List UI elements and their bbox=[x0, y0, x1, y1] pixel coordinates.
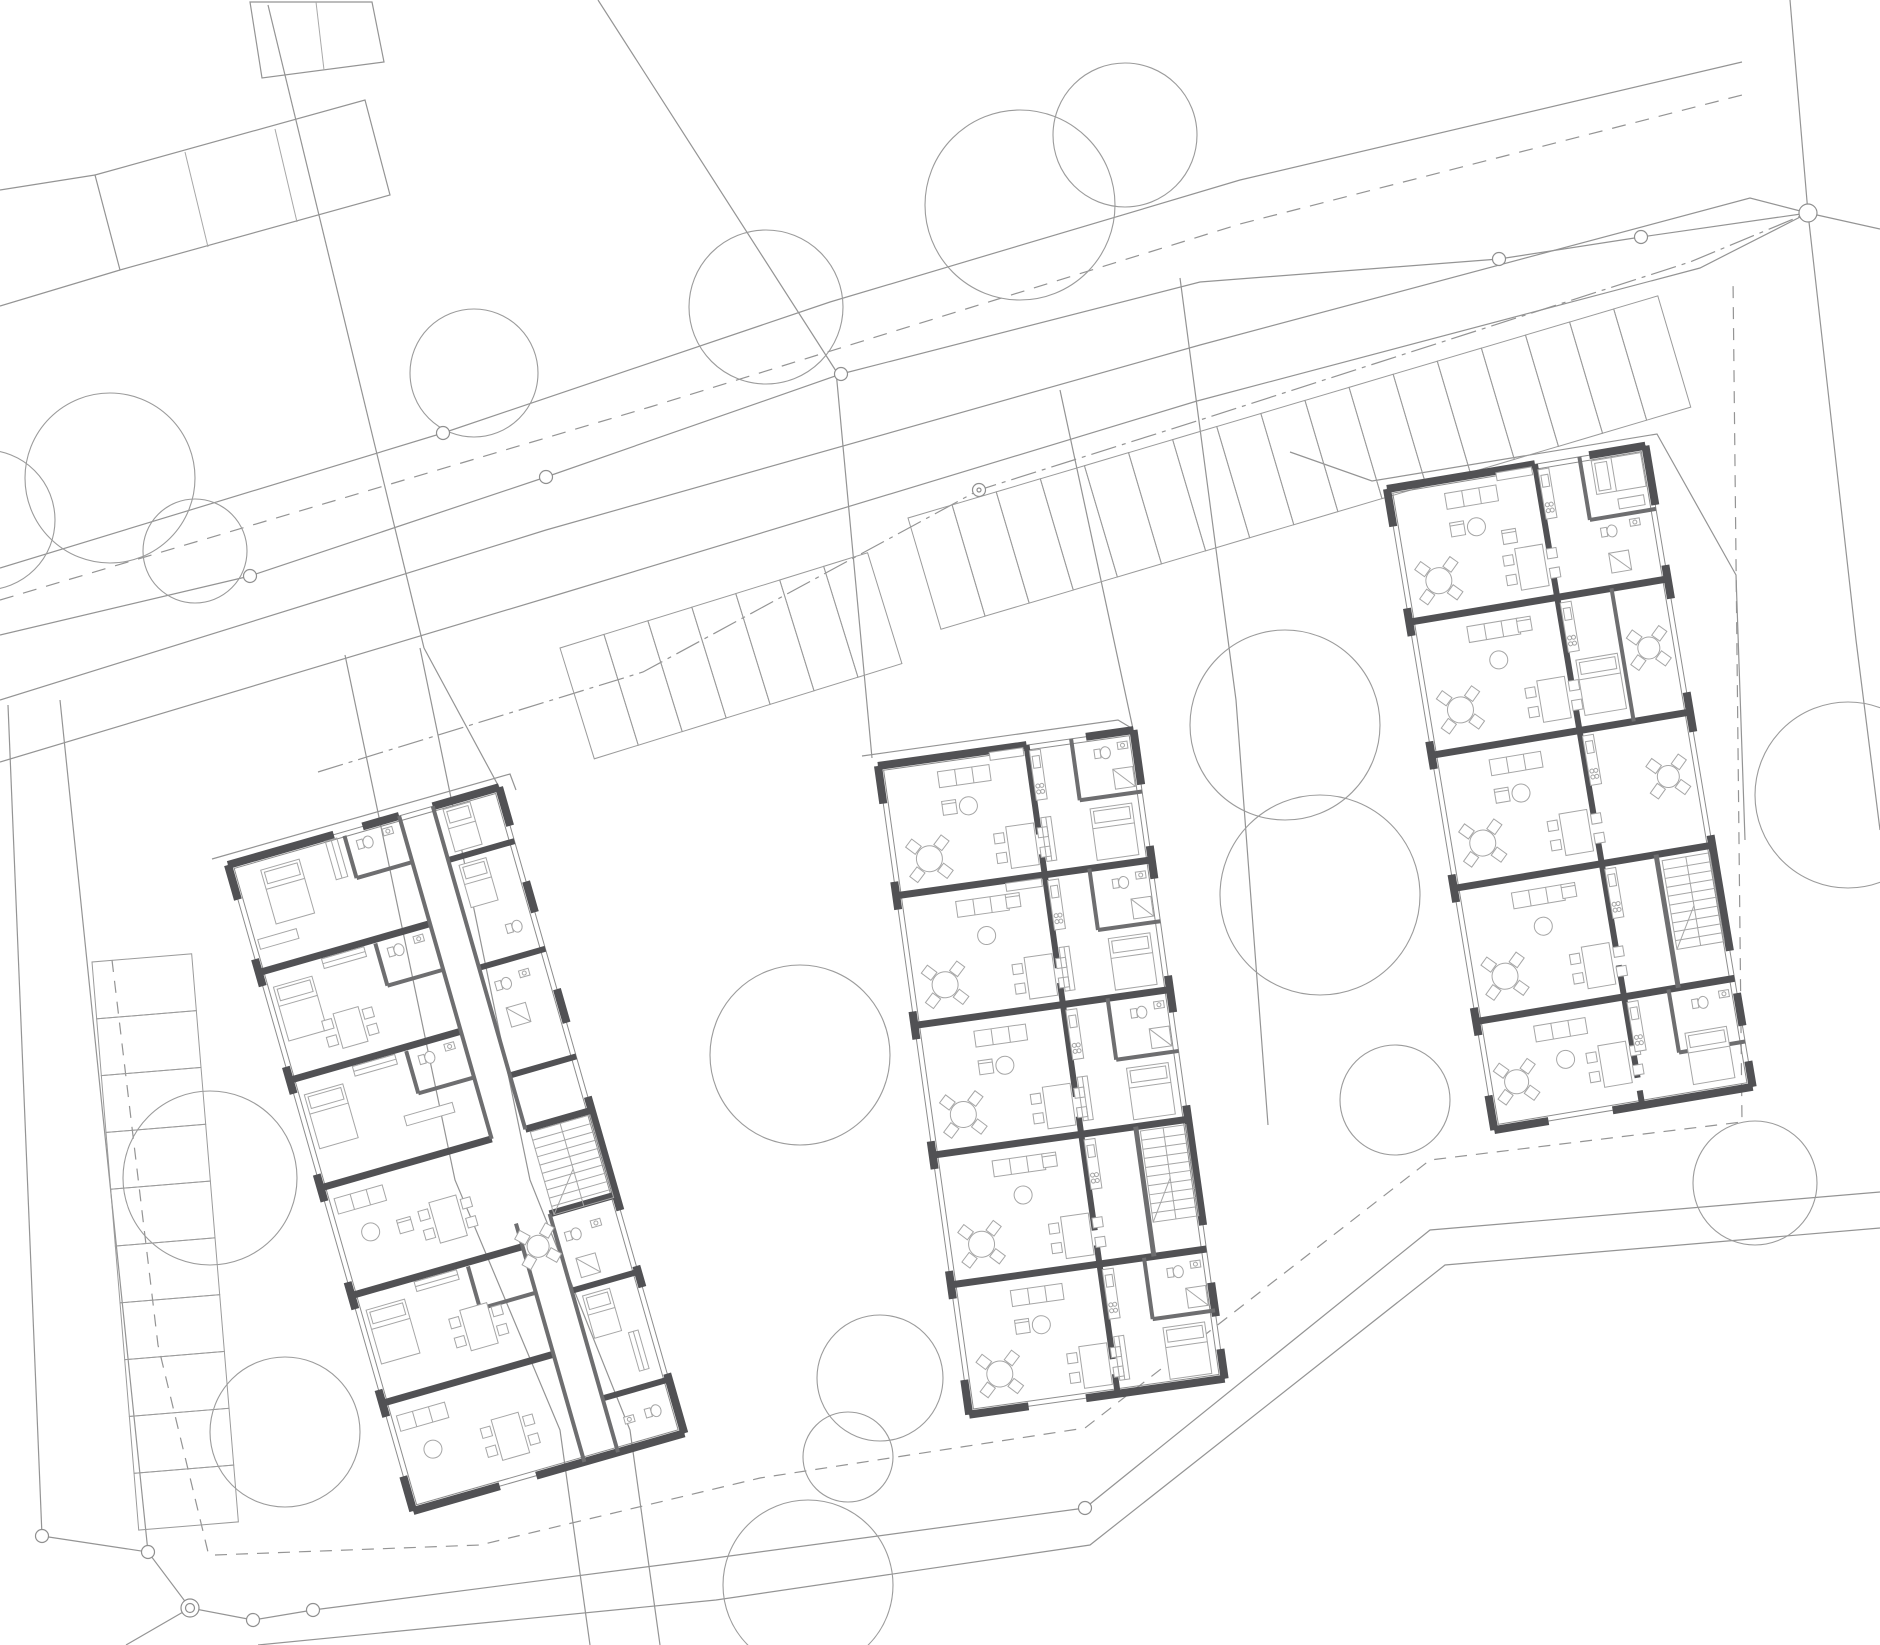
furniture-dining-table bbox=[1061, 1213, 1095, 1258]
furniture-sofa bbox=[992, 1154, 1046, 1177]
tree-circle bbox=[1693, 1121, 1817, 1245]
chair bbox=[1033, 1113, 1044, 1124]
furniture-sink bbox=[444, 1042, 456, 1051]
partition-wall bbox=[1153, 1310, 1215, 1319]
furniture-sink bbox=[1718, 990, 1729, 999]
wall-segment bbox=[351, 1247, 522, 1296]
parking-stall bbox=[1040, 466, 1117, 590]
chair bbox=[1571, 699, 1583, 711]
west-boundary-dashed bbox=[112, 960, 208, 1552]
tree-circle bbox=[410, 309, 538, 437]
site-plan-svg bbox=[0, 0, 1880, 1645]
survey-point bbox=[1635, 231, 1648, 244]
parking-stall bbox=[120, 1295, 224, 1360]
furniture-armchair bbox=[978, 1059, 994, 1075]
partition-wall bbox=[418, 1077, 474, 1093]
furniture-sofa bbox=[1489, 751, 1543, 775]
wall-segment bbox=[526, 881, 535, 912]
wall-segment bbox=[1748, 1061, 1752, 1087]
chair bbox=[466, 1216, 478, 1228]
furniture-dining-table bbox=[1537, 676, 1572, 722]
chair bbox=[1589, 1071, 1601, 1083]
furniture-bed bbox=[273, 976, 327, 1041]
furniture-coffee-table bbox=[1533, 916, 1554, 937]
partition-wall bbox=[387, 970, 443, 986]
wall-segment bbox=[403, 1476, 413, 1511]
stair-break bbox=[1147, 1178, 1176, 1222]
survey-manhole-dot bbox=[977, 488, 981, 492]
chair bbox=[1613, 946, 1625, 958]
chair bbox=[322, 1018, 334, 1030]
furniture-sofa bbox=[334, 1185, 386, 1214]
parking-stall bbox=[560, 634, 638, 758]
detail-line bbox=[316, 2, 324, 70]
wall-segment bbox=[510, 1056, 576, 1075]
furniture-bed bbox=[443, 802, 482, 852]
partition-wall bbox=[468, 1266, 480, 1308]
chair bbox=[454, 1335, 466, 1347]
parking-stall bbox=[111, 1181, 215, 1246]
furniture-dining-table bbox=[1042, 1083, 1076, 1128]
partition-wall bbox=[1080, 791, 1142, 800]
wall-segment bbox=[1645, 446, 1655, 505]
survey-point bbox=[437, 427, 450, 440]
chair bbox=[1525, 687, 1537, 699]
partition-wall bbox=[375, 943, 387, 985]
furniture-sofa bbox=[937, 765, 991, 788]
partition-wall bbox=[1116, 1051, 1178, 1060]
wall-segment bbox=[969, 1406, 1028, 1414]
furniture-dining-table bbox=[1024, 954, 1058, 999]
plot-line-c bbox=[1060, 390, 1133, 729]
furniture-coffee-table bbox=[422, 1438, 444, 1460]
furniture-dining-table bbox=[1581, 943, 1616, 989]
furniture-dining-table bbox=[1006, 823, 1040, 868]
furniture-armchair bbox=[1516, 616, 1532, 632]
survey-point bbox=[244, 570, 257, 583]
parking-row-west bbox=[92, 954, 238, 1530]
furniture-sink bbox=[413, 934, 425, 943]
furniture-coffee-table bbox=[1466, 516, 1487, 537]
parking-stall bbox=[692, 594, 770, 718]
wall-segment bbox=[667, 1374, 684, 1434]
tree-circle bbox=[1053, 63, 1197, 207]
tree-circle bbox=[1340, 1045, 1450, 1155]
parking-stall bbox=[1129, 440, 1206, 564]
furniture-sink bbox=[1154, 1001, 1165, 1009]
chair bbox=[1633, 1064, 1645, 1076]
chair bbox=[480, 1426, 492, 1438]
furniture-sofa bbox=[1511, 884, 1565, 908]
tree-circle bbox=[0, 450, 55, 590]
chair bbox=[1550, 839, 1562, 851]
furniture-armchair bbox=[396, 1216, 413, 1233]
furniture-coffee-table bbox=[1013, 1185, 1033, 1205]
shower-line bbox=[1131, 896, 1154, 919]
furniture-coffee-table bbox=[1511, 783, 1532, 804]
window-band-outer bbox=[878, 730, 1225, 1415]
tree-circle bbox=[1755, 702, 1880, 888]
wall-segment bbox=[259, 924, 430, 973]
chair bbox=[1012, 963, 1023, 974]
chair bbox=[996, 852, 1007, 863]
survey-point bbox=[247, 1614, 260, 1627]
furniture-armchair bbox=[942, 800, 958, 816]
chair bbox=[528, 1433, 540, 1445]
tree-circle bbox=[1220, 795, 1420, 995]
partition-wall bbox=[1136, 1127, 1154, 1257]
wall-segment bbox=[290, 1031, 461, 1080]
tree-circle bbox=[710, 965, 890, 1145]
parking-stall bbox=[97, 1011, 201, 1076]
parking-stall bbox=[996, 479, 1073, 603]
partition-wall bbox=[1108, 998, 1117, 1059]
shower-line bbox=[506, 1002, 531, 1027]
parking-stall bbox=[101, 1067, 205, 1132]
chair bbox=[1586, 1052, 1598, 1064]
furniture-dining-table bbox=[1598, 1041, 1633, 1087]
detail-line bbox=[275, 129, 297, 222]
wall-segment bbox=[479, 949, 545, 968]
chair bbox=[449, 1316, 461, 1328]
parking-row-a bbox=[560, 553, 902, 759]
wall-segment bbox=[1387, 489, 1393, 526]
driveway-line-west bbox=[268, 5, 424, 648]
wall-segment bbox=[572, 1272, 638, 1291]
detail-line bbox=[185, 152, 208, 247]
chair bbox=[1546, 547, 1558, 559]
buildings-layer bbox=[228, 446, 1753, 1511]
chair bbox=[1590, 813, 1602, 825]
chair bbox=[1015, 983, 1026, 994]
site-plan-canvas bbox=[0, 0, 1880, 1645]
road-north-edge bbox=[0, 198, 1808, 700]
survey-point bbox=[1493, 253, 1506, 266]
furniture-coffee-table bbox=[958, 796, 978, 816]
wall-segment bbox=[603, 1379, 669, 1398]
furniture-coffee-table bbox=[1031, 1315, 1051, 1335]
survey-point bbox=[1079, 1502, 1092, 1515]
west-street-outer bbox=[8, 705, 42, 1536]
furniture-bed bbox=[583, 1288, 622, 1338]
furniture-sink bbox=[1135, 871, 1146, 879]
chair bbox=[1573, 973, 1585, 985]
shower-line bbox=[1113, 767, 1136, 790]
tree-circle bbox=[143, 499, 247, 603]
parking-stall bbox=[780, 566, 858, 690]
wall-segment bbox=[363, 816, 400, 826]
southwest-chain bbox=[42, 1536, 313, 1620]
wall-segment bbox=[1494, 1121, 1548, 1130]
building-middle bbox=[878, 730, 1225, 1415]
parking-stall bbox=[1261, 400, 1338, 524]
partition-wall bbox=[1590, 509, 1656, 520]
tree-circle bbox=[817, 1315, 943, 1441]
survey-point bbox=[835, 368, 848, 381]
furniture-bed bbox=[1163, 1322, 1212, 1379]
furniture-armchair bbox=[1005, 893, 1021, 909]
chair bbox=[423, 1228, 435, 1240]
chair bbox=[486, 1445, 498, 1457]
chair bbox=[1095, 1236, 1106, 1247]
partition-wall bbox=[1098, 921, 1160, 930]
block-edge-1 bbox=[0, 175, 95, 190]
parking-stall bbox=[1614, 296, 1691, 420]
chair bbox=[1051, 1242, 1062, 1253]
tree-circle bbox=[723, 1500, 893, 1645]
furniture-sink bbox=[1629, 518, 1640, 527]
wall-segment bbox=[1737, 993, 1742, 1026]
junction-north-spur bbox=[1790, 0, 1808, 213]
parking-stall bbox=[1481, 335, 1558, 459]
parking-stall bbox=[1437, 348, 1514, 472]
tree-circle bbox=[689, 230, 843, 384]
furniture-sofa bbox=[1445, 485, 1499, 509]
parking-stall bbox=[106, 1124, 210, 1189]
chair bbox=[1048, 1223, 1059, 1234]
furniture-toilet bbox=[1112, 879, 1119, 889]
chair bbox=[1528, 706, 1540, 718]
parking-stall bbox=[115, 1238, 219, 1303]
wall-segment bbox=[499, 787, 510, 825]
furniture-bed bbox=[1576, 653, 1627, 715]
chair bbox=[994, 833, 1005, 844]
west-street-inner bbox=[60, 700, 148, 1552]
furniture-sofa bbox=[396, 1402, 448, 1431]
chair bbox=[496, 1323, 508, 1335]
wall-segment bbox=[536, 1433, 684, 1475]
chair bbox=[1549, 567, 1561, 579]
furniture-sofa bbox=[1010, 1283, 1064, 1306]
survey-point-double-inner bbox=[186, 1604, 195, 1613]
survey-point bbox=[540, 471, 553, 484]
chair bbox=[1547, 820, 1559, 832]
wall-segment bbox=[557, 989, 567, 1023]
furniture-sink bbox=[518, 968, 530, 977]
furniture-armchair bbox=[1494, 787, 1510, 803]
furniture-sofa bbox=[1467, 618, 1521, 642]
chair bbox=[1569, 953, 1581, 965]
furniture-sink bbox=[1117, 741, 1128, 749]
furniture-sink bbox=[624, 1415, 636, 1424]
furniture-coffee-table bbox=[995, 1055, 1015, 1075]
parking-stall bbox=[1173, 427, 1250, 551]
wall-segment bbox=[228, 865, 238, 900]
partition-wall bbox=[1144, 1258, 1153, 1319]
building-west bbox=[228, 787, 684, 1511]
block-edge-2 bbox=[0, 270, 120, 306]
partition-wall bbox=[1089, 869, 1098, 930]
wall-segment bbox=[321, 1139, 492, 1188]
partition-wall bbox=[1579, 457, 1590, 520]
shower-line bbox=[1609, 550, 1632, 573]
furniture-sink bbox=[590, 1218, 602, 1227]
parking-stall bbox=[604, 621, 682, 745]
furniture bbox=[1396, 448, 1747, 1116]
wall-segment bbox=[1489, 1096, 1495, 1131]
furniture-dining-table bbox=[1515, 544, 1550, 590]
partition-wall bbox=[1668, 989, 1679, 1052]
furniture-sink bbox=[1190, 1260, 1201, 1268]
partition-wall bbox=[1656, 855, 1678, 988]
survey-point bbox=[36, 1530, 49, 1543]
chair bbox=[460, 1197, 472, 1209]
east-road bbox=[1808, 213, 1880, 830]
driveway-line-east bbox=[598, 0, 836, 371]
furniture-dining-table bbox=[1559, 809, 1594, 855]
chair bbox=[418, 1209, 430, 1221]
parking-stall bbox=[1305, 387, 1382, 511]
furniture-sofa bbox=[956, 894, 1010, 917]
southwest-spur bbox=[126, 1608, 190, 1645]
parking-stall bbox=[736, 580, 814, 704]
chair bbox=[1506, 574, 1518, 586]
furniture-toilet bbox=[1167, 1268, 1174, 1278]
furniture-toilet bbox=[1130, 1008, 1137, 1018]
wall-segment bbox=[1168, 976, 1173, 1013]
furniture-bed bbox=[304, 1084, 358, 1149]
chair bbox=[1092, 1217, 1103, 1228]
survey-point-large bbox=[1799, 204, 1817, 222]
chair bbox=[1568, 680, 1580, 692]
furniture-coffee-table bbox=[976, 925, 996, 945]
furniture-bed bbox=[1108, 933, 1157, 990]
chair bbox=[522, 1414, 534, 1426]
partition-wall bbox=[1071, 739, 1080, 800]
furniture-armchair bbox=[1501, 528, 1517, 544]
wall-segment bbox=[1220, 1349, 1224, 1379]
parking-stall bbox=[1525, 322, 1602, 446]
parking-stall bbox=[1217, 413, 1294, 537]
furniture bbox=[892, 732, 1220, 1405]
walls bbox=[878, 730, 1225, 1415]
furniture-sideboard bbox=[404, 1102, 455, 1125]
chair bbox=[1594, 832, 1606, 844]
wall-segment bbox=[1640, 1091, 1642, 1106]
plot-line-a bbox=[424, 648, 499, 787]
furniture-sideboard bbox=[258, 929, 299, 950]
furniture-armchair bbox=[1014, 1318, 1030, 1334]
tree-circle bbox=[25, 393, 195, 563]
shower-line bbox=[576, 1253, 601, 1278]
wardrobe-line bbox=[331, 840, 342, 878]
furniture-coffee-table bbox=[1488, 650, 1509, 671]
wall-segment bbox=[878, 766, 883, 804]
furniture-bed bbox=[1090, 803, 1139, 860]
partition-wall bbox=[357, 862, 413, 878]
chair bbox=[367, 1023, 379, 1035]
partition-wall bbox=[406, 1051, 418, 1093]
parking-stall bbox=[1570, 309, 1647, 433]
furniture-bed bbox=[1126, 1063, 1175, 1120]
chair bbox=[1503, 555, 1515, 567]
survey-point bbox=[307, 1604, 320, 1617]
chair bbox=[491, 1304, 503, 1316]
tree-circle bbox=[1190, 630, 1380, 820]
parking-stall bbox=[648, 607, 726, 731]
furniture-sofa bbox=[1534, 1018, 1588, 1042]
chair bbox=[1069, 1372, 1080, 1383]
furniture-armchair bbox=[1561, 882, 1577, 898]
furniture-sideboard bbox=[1618, 495, 1645, 509]
chair bbox=[1616, 965, 1628, 977]
furniture-coffee-table bbox=[360, 1221, 382, 1243]
furniture-coffee-table bbox=[1555, 1049, 1576, 1070]
wardrobe-line bbox=[633, 1331, 644, 1369]
stair-rail bbox=[1686, 857, 1701, 946]
furniture-bed bbox=[261, 859, 315, 924]
parking-stall bbox=[952, 492, 1029, 616]
furniture-armchair bbox=[1449, 521, 1465, 537]
wall-segment bbox=[964, 1380, 969, 1415]
furniture-dining-table bbox=[1079, 1343, 1113, 1388]
furniture-bed bbox=[459, 858, 498, 908]
partition-wall bbox=[433, 806, 526, 1129]
chair bbox=[1030, 1093, 1041, 1104]
shower-line bbox=[1149, 1026, 1172, 1049]
furniture-armchair bbox=[1042, 1152, 1058, 1168]
parking-stall bbox=[92, 954, 196, 1019]
chair bbox=[362, 1007, 374, 1019]
wall-segment bbox=[1613, 1087, 1753, 1110]
junction-east-spur bbox=[1808, 213, 1880, 229]
survey-point bbox=[142, 1546, 155, 1559]
chair bbox=[1067, 1353, 1078, 1364]
parking-stall bbox=[125, 1351, 229, 1416]
tree-circle bbox=[210, 1357, 360, 1507]
furniture-sink bbox=[382, 826, 394, 835]
building-east bbox=[1387, 446, 1753, 1130]
shower-line bbox=[1186, 1285, 1209, 1308]
furniture-toilet bbox=[1094, 749, 1101, 759]
furniture-sofa bbox=[974, 1024, 1028, 1047]
furniture-bed bbox=[366, 1299, 420, 1364]
wall-segment bbox=[413, 1486, 500, 1511]
tree-circle bbox=[803, 1412, 893, 1502]
parking-stall bbox=[1349, 374, 1426, 498]
parking-stall bbox=[908, 505, 985, 629]
parking-stall bbox=[134, 1465, 238, 1530]
existing-building-1 bbox=[95, 100, 390, 270]
wall-segment bbox=[382, 1354, 553, 1403]
stair-rail bbox=[1163, 1128, 1176, 1219]
chair bbox=[326, 1035, 338, 1047]
